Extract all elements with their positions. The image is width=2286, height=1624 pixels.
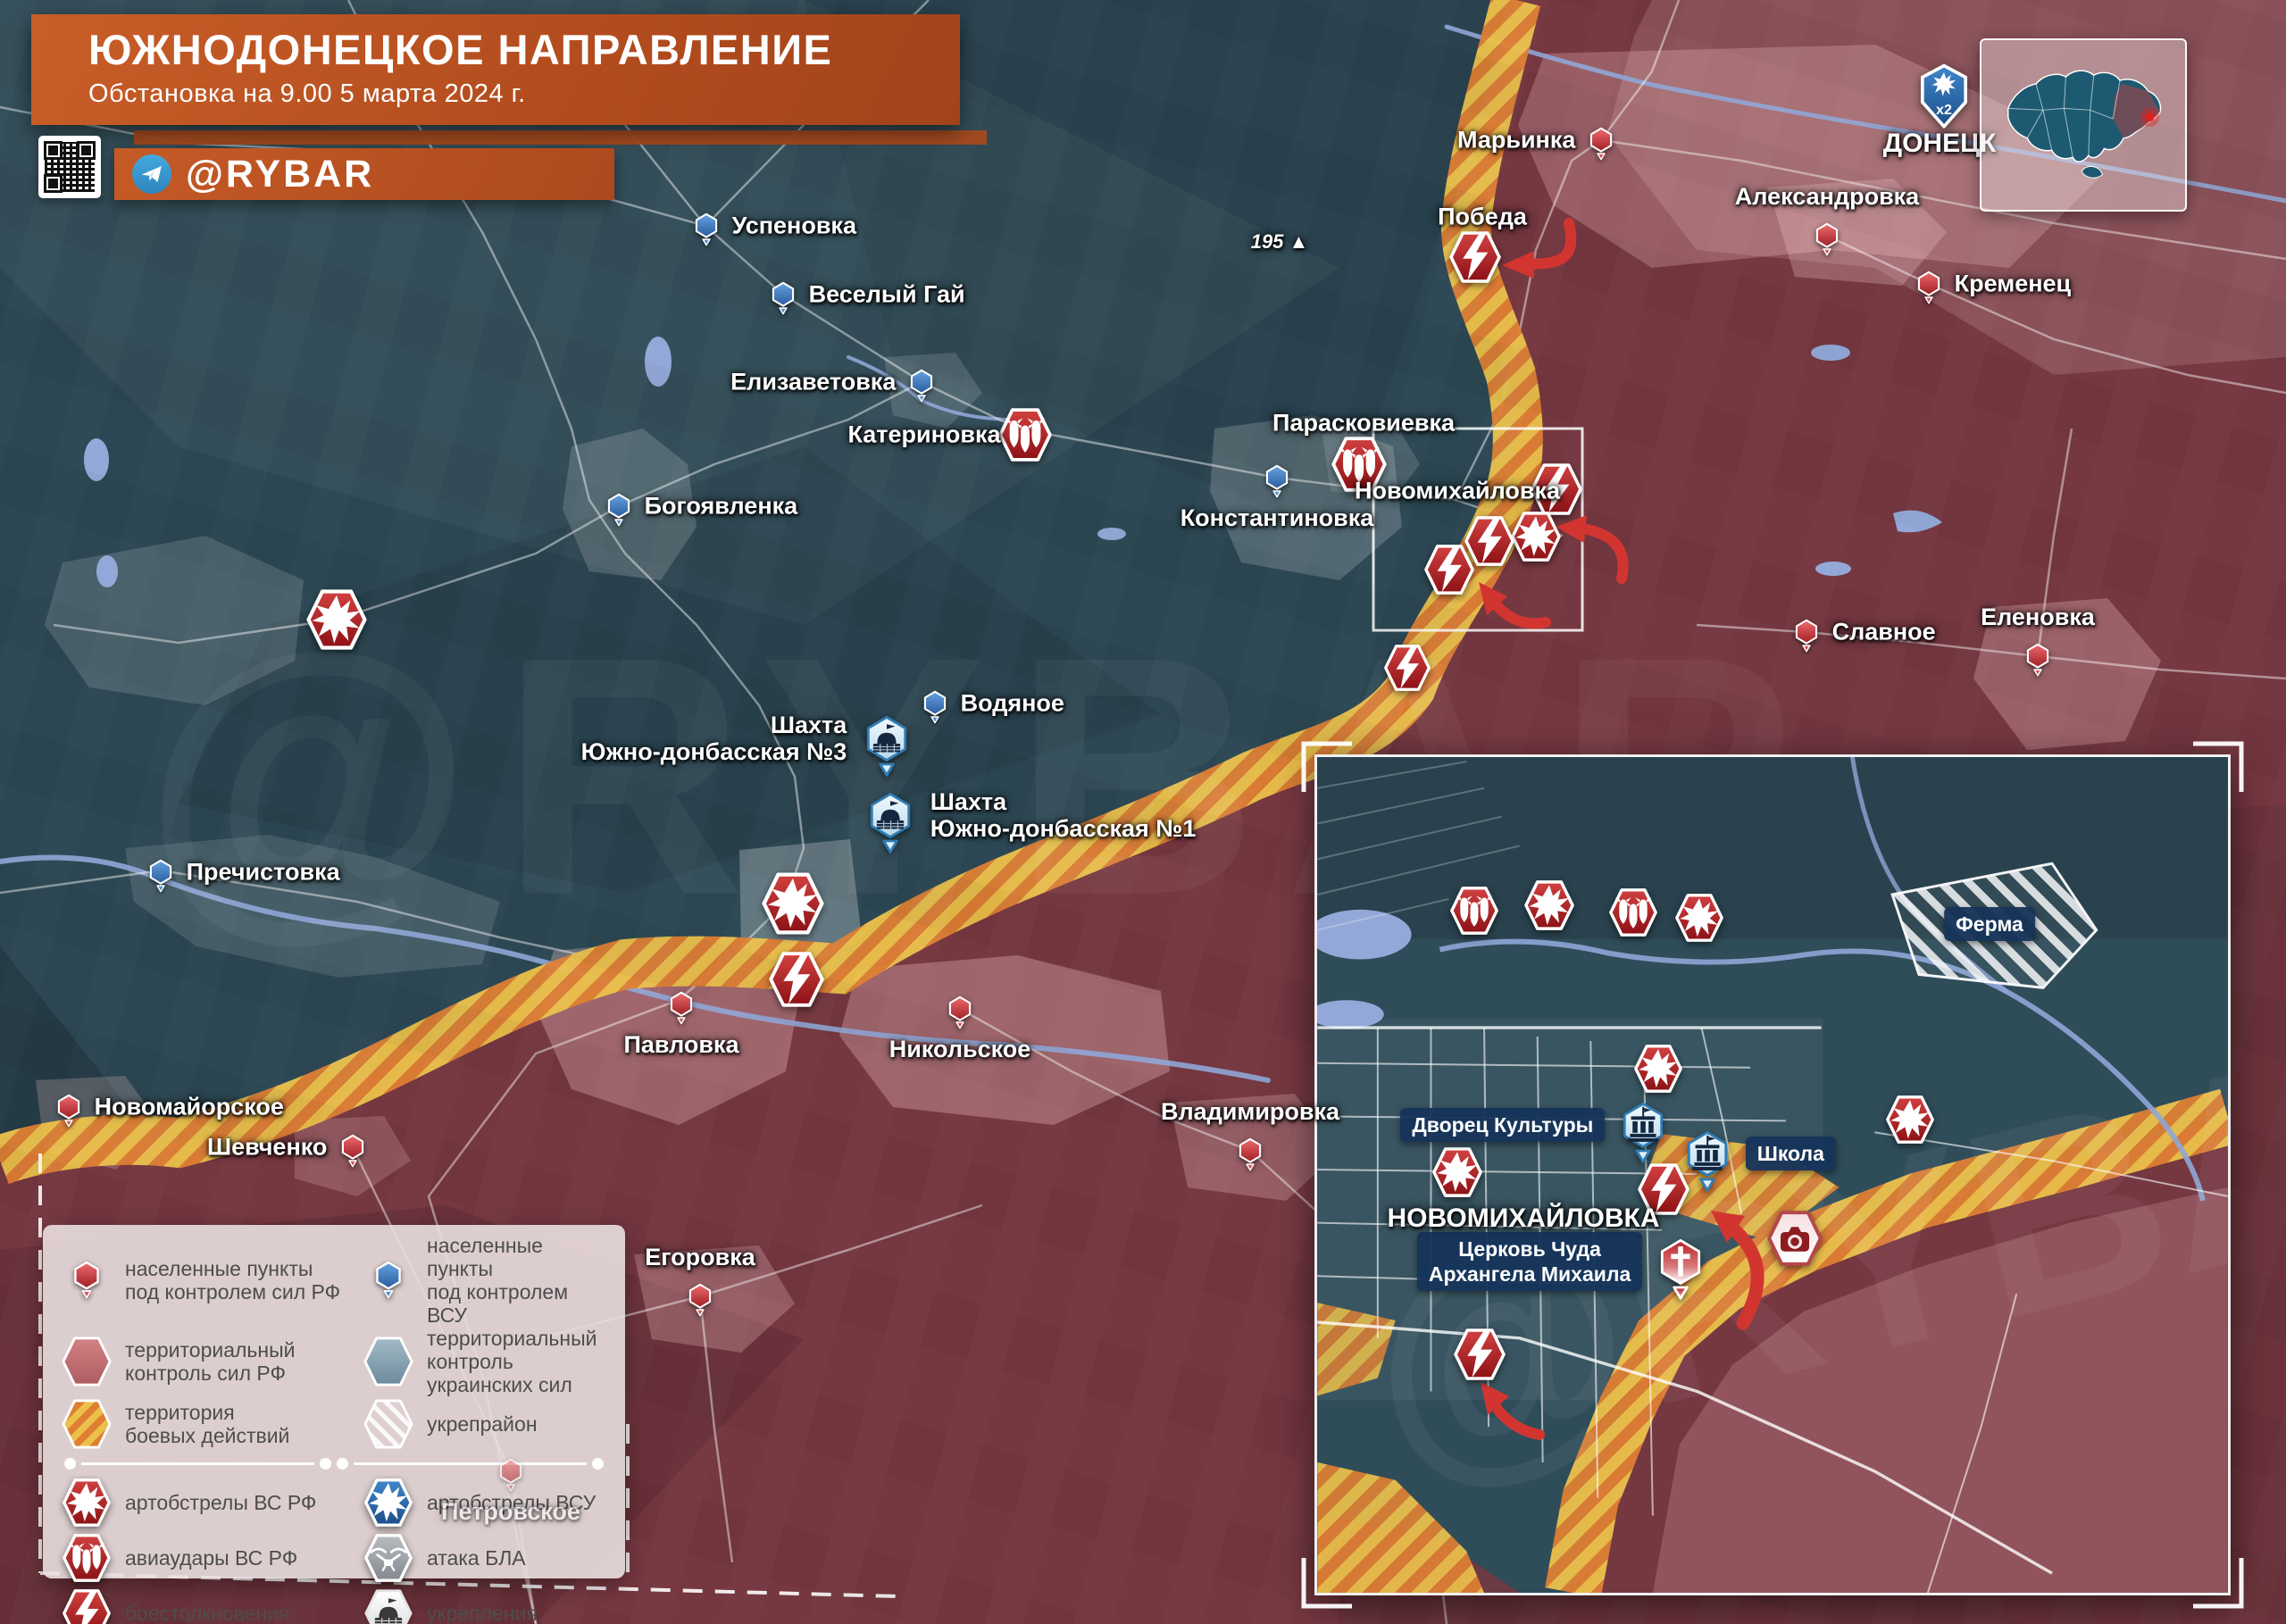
map-canvas: @RYBAR	[0, 0, 2286, 1624]
town-label: Петровское	[441, 1498, 580, 1526]
town-pin-ru[interactable]	[497, 1458, 524, 1494]
ghost-markers-layer: Петровское	[0, 0, 2286, 1624]
